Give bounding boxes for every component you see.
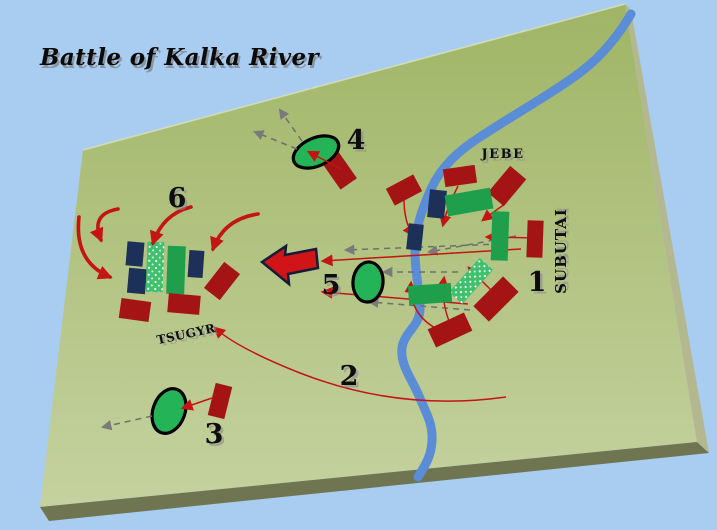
map-canvas: JEBEJEBESUBUTAISUBUTAITSUGYRTSUGYR112233… <box>0 0 717 530</box>
number-label-2: 2 <box>340 361 359 392</box>
number-label-4: 4 <box>347 125 366 156</box>
unit-subutai-red-tall <box>526 220 543 258</box>
number-label-3: 3 <box>205 419 224 450</box>
map-title: Battle of Kalka River <box>40 44 319 71</box>
unit-left-red-2 <box>167 293 201 315</box>
unit-left-navy-2 <box>127 268 147 294</box>
number-label-6: 6 <box>168 183 187 214</box>
unit-left-navy-3 <box>188 250 205 278</box>
battle-map-scene: JEBEJEBESUBUTAISUBUTAITSUGYRTSUGYR112233… <box>0 0 717 530</box>
label-jebe: JEBE <box>481 147 525 162</box>
unit-subutai-green-wide <box>408 283 452 305</box>
unit-left-navy-1 <box>125 241 144 266</box>
unit-left-red-1 <box>119 298 151 322</box>
unit-subutai-green-tall <box>491 211 510 261</box>
unit-jebe-navy-2 <box>406 223 424 250</box>
number-label-5: 5 <box>322 270 341 301</box>
unit-left-green <box>166 246 186 295</box>
unit-jebe-navy-1 <box>427 189 447 219</box>
unit-left-stipple <box>146 242 165 293</box>
number-label-1: 1 <box>528 267 547 298</box>
label-subutai: SUBUTAI <box>552 208 570 294</box>
